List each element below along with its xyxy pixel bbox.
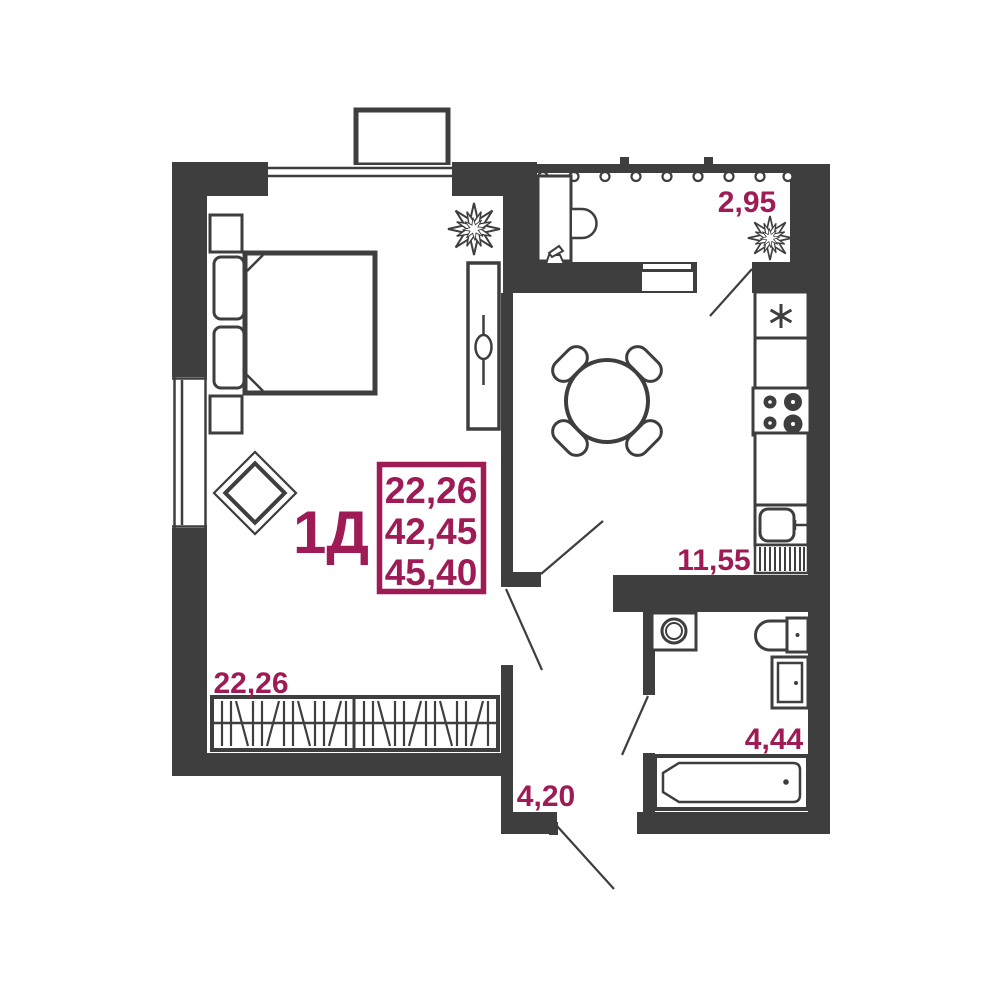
plant-icon [448, 203, 500, 255]
washing-machine [652, 613, 696, 650]
balcony-glazing [539, 172, 793, 181]
plant-icon [748, 216, 792, 260]
stove [753, 388, 810, 435]
balcony-area-label: 2,95 [718, 186, 776, 219]
top-window-sill [356, 110, 448, 165]
toilet [756, 618, 809, 652]
kitchen-area-label: 11,55 [677, 544, 750, 577]
hallway-area-label: 4,20 [517, 780, 575, 813]
top-window [268, 165, 452, 196]
pillow [214, 327, 244, 388]
living-door-swing [506, 589, 542, 670]
entrance-door-swing [557, 826, 614, 889]
living-space-value: 22,26 [385, 470, 478, 511]
bathtub [655, 756, 808, 809]
bathroom-area-label: 4,44 [745, 723, 804, 756]
bathroom-door-swing [622, 696, 648, 755]
living-area-label: 22,26 [213, 667, 288, 700]
area-summary-box: 22,26 42,45 45,40 [380, 465, 484, 594]
kitchen-counter [755, 433, 808, 507]
floor-plan-page: 2,95 11,55 22,26 4,44 4,20 1Д 22,26 42,4… [0, 0, 1000, 1000]
fridge [755, 292, 808, 340]
kitchen-door-swing [541, 521, 603, 574]
drainboard [755, 545, 808, 573]
nightstand-bottom [210, 396, 242, 433]
wardrobe-tall [468, 263, 499, 429]
left-window [172, 377, 207, 528]
balcony-door-swing [710, 269, 752, 316]
balcony-desk [538, 176, 571, 264]
area-without-balcony-value: 42,45 [385, 511, 478, 552]
nightstand-top [210, 215, 242, 252]
bathroom-sink [772, 657, 808, 708]
bed [210, 215, 375, 433]
kitchen-sink [755, 505, 808, 545]
armchair [214, 452, 296, 534]
balcony-chair [572, 209, 597, 238]
floor-plan: 2,95 11,55 22,26 4,44 4,20 1Д 22,26 42,4… [0, 0, 1000, 1000]
closet-hangers [212, 697, 498, 750]
unit-type-label: 1Д [293, 499, 369, 566]
pillow [214, 257, 244, 319]
kitchen-counter [755, 338, 808, 390]
balcony-door-window-unit [642, 264, 693, 291]
total-area-value: 45,40 [385, 552, 478, 593]
